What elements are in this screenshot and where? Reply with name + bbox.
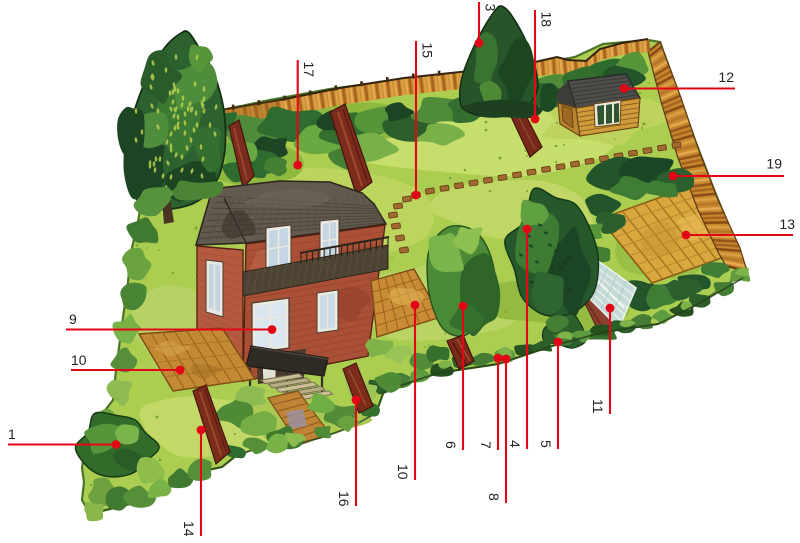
svg-text:12: 12: [718, 69, 734, 85]
svg-text:14: 14: [181, 521, 197, 537]
svg-text:16: 16: [336, 491, 352, 507]
svg-text:8: 8: [486, 493, 502, 501]
svg-text:3: 3: [482, 4, 498, 12]
svg-text:6: 6: [443, 441, 459, 449]
svg-text:10: 10: [71, 352, 87, 368]
svg-text:11: 11: [590, 399, 606, 414]
svg-text:13: 13: [779, 216, 795, 232]
svg-text:7: 7: [478, 441, 494, 449]
svg-text:9: 9: [69, 311, 77, 327]
svg-text:5: 5: [538, 440, 554, 448]
svg-text:15: 15: [419, 43, 435, 59]
svg-text:17: 17: [301, 62, 317, 78]
svg-text:19: 19: [766, 156, 782, 172]
svg-text:4: 4: [507, 440, 523, 448]
svg-text:18: 18: [538, 12, 554, 28]
svg-text:10: 10: [395, 464, 411, 480]
svg-text:1: 1: [8, 426, 16, 442]
